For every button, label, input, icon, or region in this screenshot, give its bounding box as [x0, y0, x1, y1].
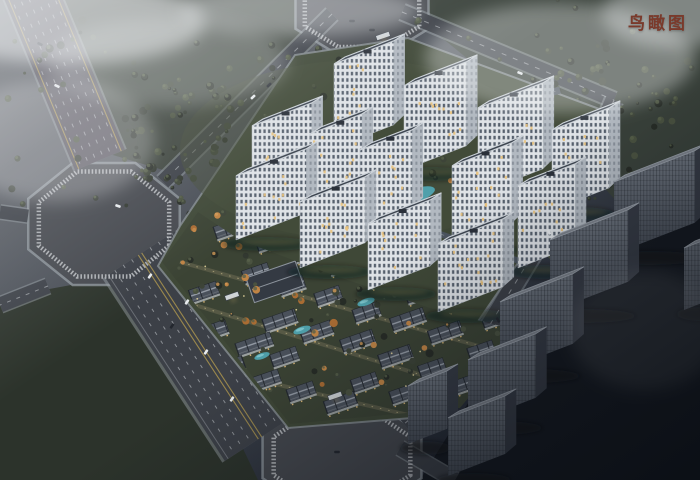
- scene-layers: [0, 0, 700, 480]
- aerial-rendering-screenshot: 鸟瞰图: [0, 0, 700, 480]
- view-label: 鸟瞰图: [628, 9, 688, 34]
- birdseye-scene: [0, 0, 700, 480]
- vignette: [0, 0, 700, 480]
